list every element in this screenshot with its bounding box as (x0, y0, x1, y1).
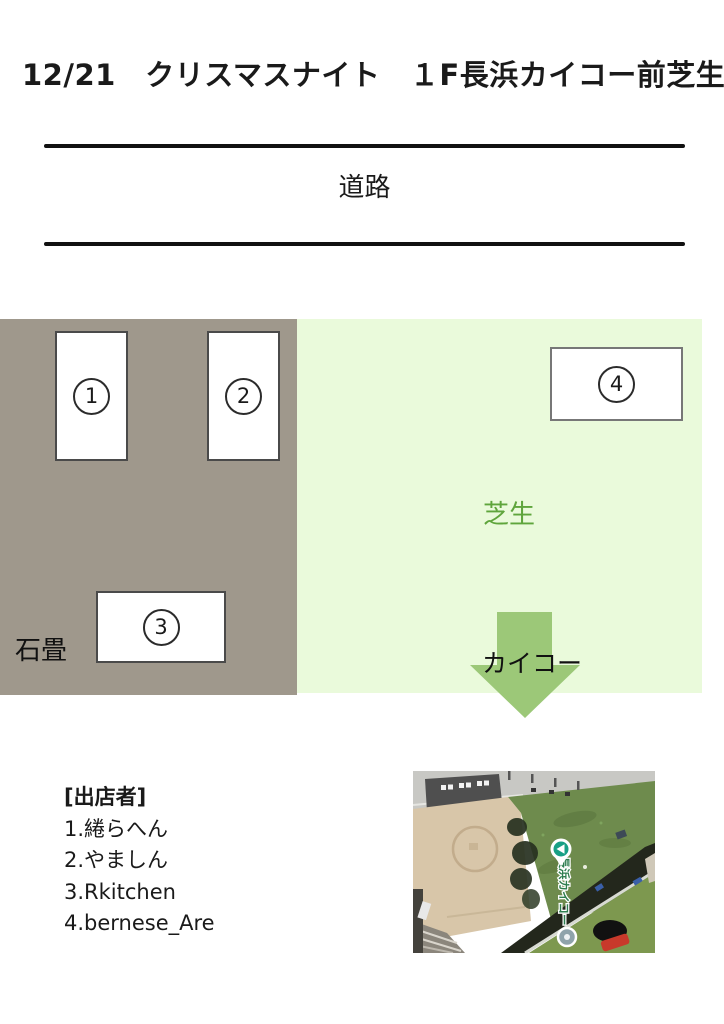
vendor-list-heading: [出店者] (64, 782, 215, 814)
booth-3: 3 (96, 591, 226, 663)
booth-4: 4 (550, 347, 683, 421)
booth-1-number: 1 (73, 378, 110, 415)
kaiko-arrow-label: カイコー (482, 644, 582, 680)
booth-2: 2 (207, 331, 280, 461)
vendor-item-1: 1.綣らへん (64, 814, 215, 846)
road-label: 道路 (44, 167, 685, 204)
page-title: 12/21 クリスマスナイト １F長浜カイコー前芝生 (22, 52, 712, 94)
lawn-zone-label: 芝生 (483, 494, 535, 531)
vendor-item-4: 4.bernese_Are (64, 908, 215, 940)
vendor-item-3: 3.Rkitchen (64, 877, 215, 909)
aerial-photo-place-label: 長浜カイコー (557, 857, 571, 926)
road-top-line (44, 144, 685, 148)
vendor-list: [出店者] 1.綣らへん 2.やましん 3.Rkitchen 4.bernese… (64, 782, 215, 940)
circle-marker-icon (558, 928, 576, 946)
aerial-photo: 長浜カイコー (413, 771, 655, 953)
road-bottom-line (44, 242, 685, 246)
stone-zone-label: 石畳 (15, 630, 67, 667)
vendor-item-2: 2.やましん (64, 845, 215, 877)
event-layout-flyer: 12/21 クリスマスナイト １F長浜カイコー前芝生 道路 1 2 3 4 芝生… (0, 0, 724, 1024)
booth-2-number: 2 (225, 378, 262, 415)
booth-1: 1 (55, 331, 128, 461)
aerial-photo-graphic: 長浜カイコー (413, 771, 655, 953)
booth-3-number: 3 (143, 609, 180, 646)
booth-4-number: 4 (598, 366, 635, 403)
